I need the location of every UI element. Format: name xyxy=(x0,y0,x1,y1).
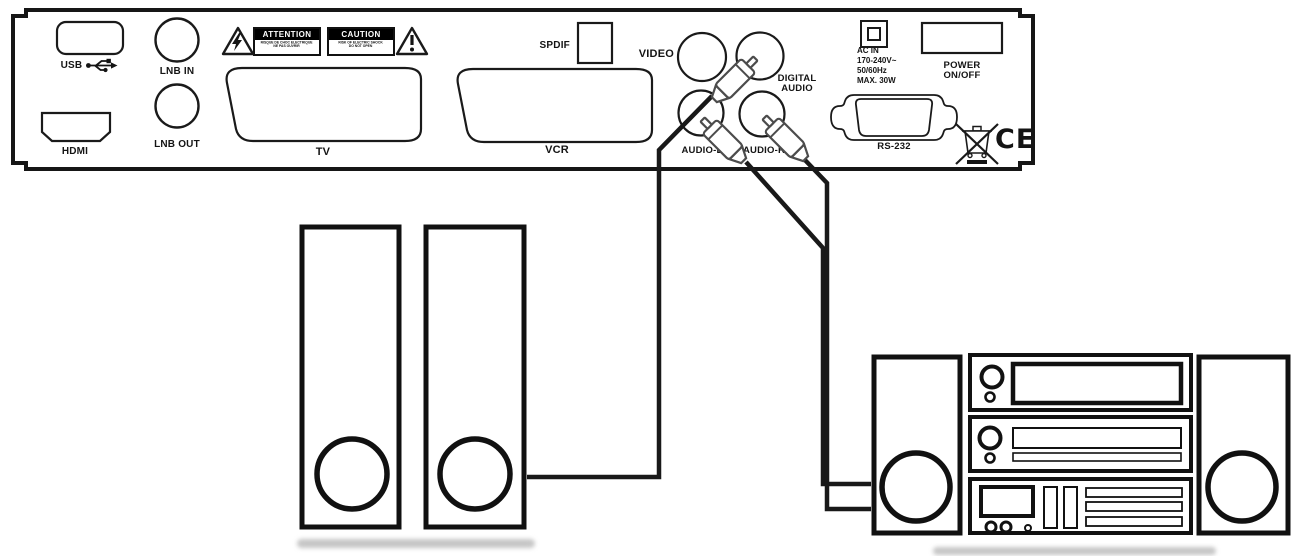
speaker-right-woofer xyxy=(440,439,510,509)
display xyxy=(981,487,1033,516)
electric-shock-warning-icon xyxy=(223,28,253,54)
small-knob xyxy=(986,454,995,463)
vcr-scart-port xyxy=(458,69,652,142)
hifi-right-woofer xyxy=(1208,453,1276,521)
spdif-port xyxy=(578,23,612,63)
knob xyxy=(980,428,1001,449)
speaker-left-woofer xyxy=(317,439,387,509)
slot xyxy=(1013,453,1181,461)
diagram-artwork xyxy=(0,0,1298,556)
display xyxy=(1013,364,1181,403)
video-jack xyxy=(678,33,726,81)
hifi-component-middle xyxy=(970,417,1191,471)
usb-port xyxy=(57,22,123,54)
rs232-port xyxy=(831,95,957,140)
connection-diagram: USB HDMI LNB IN LNB OUT TV VCR SPDIF VID… xyxy=(0,0,1298,556)
power-switch xyxy=(922,23,1002,53)
display xyxy=(1013,428,1181,448)
hifi-system xyxy=(874,355,1288,533)
knob xyxy=(982,367,1003,388)
cable-to-hifi-1 xyxy=(746,162,871,484)
lnb-in-jack xyxy=(156,19,199,62)
hifi-component-bottom xyxy=(970,479,1191,533)
hdmi-port xyxy=(42,113,110,141)
small-knob xyxy=(986,393,995,402)
cable-to-speakers xyxy=(527,96,712,477)
rca-plug-audio-r xyxy=(758,111,813,166)
slot xyxy=(1044,487,1057,528)
hifi-shadow xyxy=(933,547,1216,555)
cable-to-hifi-2 xyxy=(804,159,871,509)
tv-scart-port xyxy=(227,68,421,141)
hifi-left-woofer xyxy=(882,453,950,521)
speaker-pair-shadow xyxy=(297,539,535,548)
small-knob xyxy=(986,522,996,532)
vent xyxy=(1086,517,1182,526)
hifi-component-top xyxy=(970,355,1191,410)
lnb-out-jack xyxy=(156,85,199,128)
slot xyxy=(1064,487,1077,528)
tiny-knob xyxy=(1025,525,1031,531)
speaker-pair xyxy=(302,227,524,527)
small-knob xyxy=(1001,522,1011,532)
audio-cables xyxy=(527,96,871,509)
vent xyxy=(1086,502,1182,511)
crossed-out-wheeled-bin-icon xyxy=(956,124,998,164)
ac-inlet xyxy=(861,21,887,47)
general-warning-icon xyxy=(397,28,427,54)
vent xyxy=(1086,488,1182,497)
